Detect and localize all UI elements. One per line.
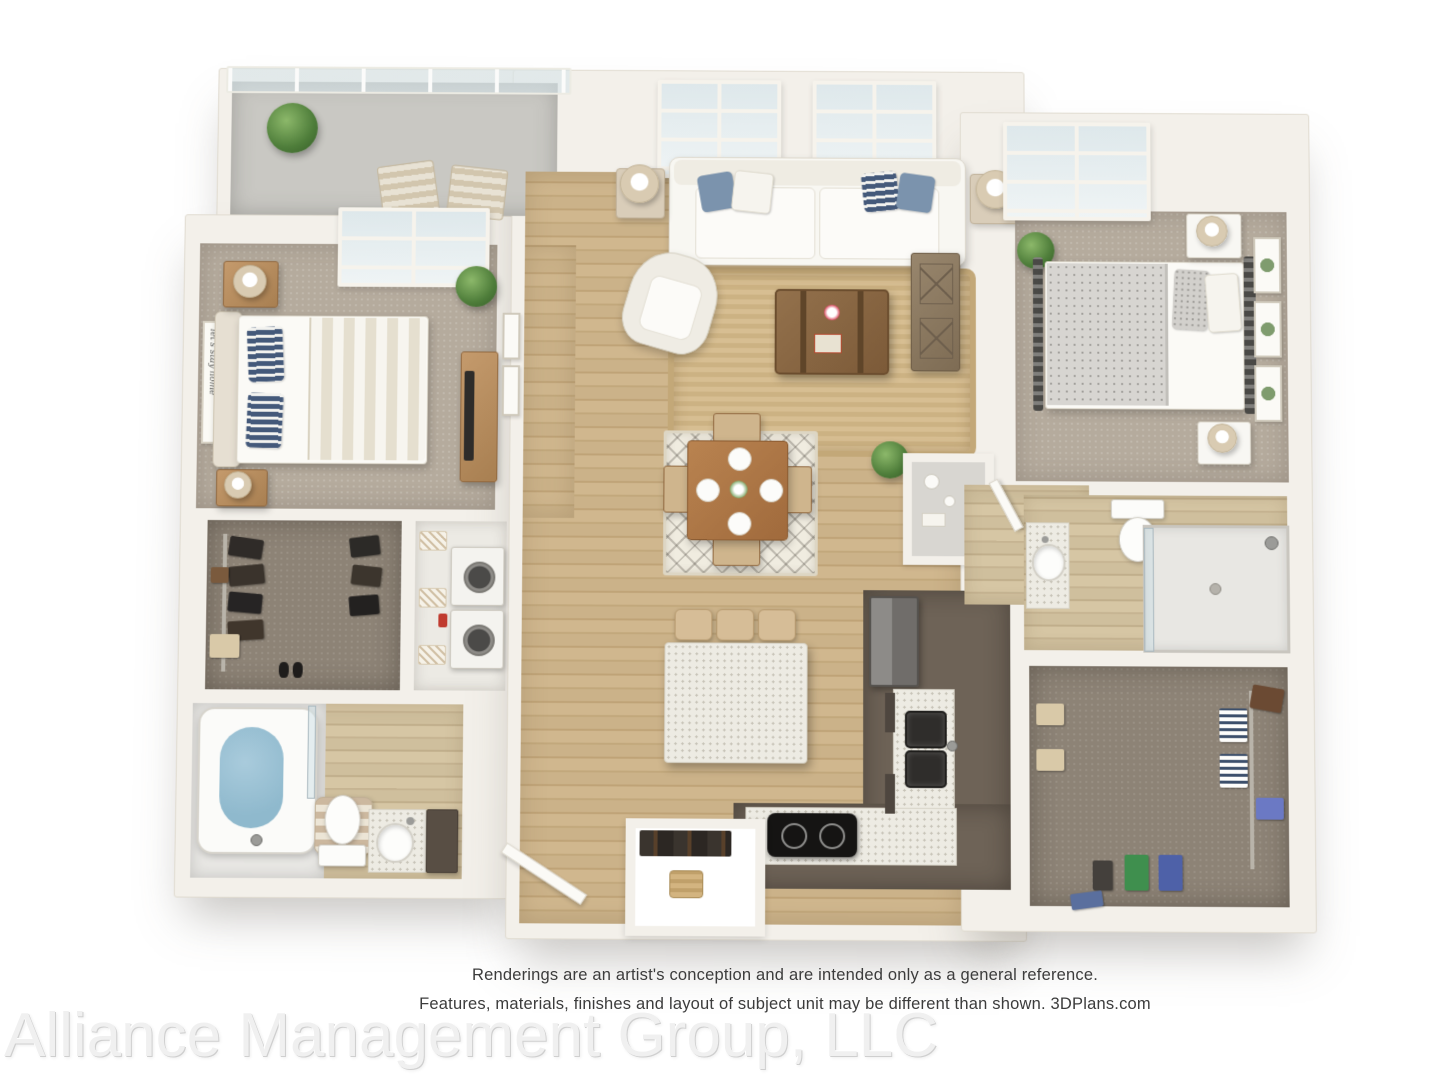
entry-closet-shelf bbox=[640, 830, 732, 856]
bathroom1-glass-screen bbox=[307, 706, 316, 799]
laundry-washer bbox=[450, 547, 504, 606]
armchair-cushion bbox=[637, 273, 704, 342]
coffee-table-flowers bbox=[824, 305, 840, 321]
laundry-towel-3 bbox=[418, 645, 446, 665]
bedroom1-plant bbox=[455, 266, 497, 307]
kitchen-sink-basin-bottom bbox=[905, 750, 947, 788]
kitchen-cooktop bbox=[767, 813, 857, 857]
bedroom1-bed bbox=[213, 315, 427, 462]
closet1-jacket-3 bbox=[227, 591, 263, 614]
bed1-pillow-bottom bbox=[245, 393, 283, 449]
kitchen-island bbox=[664, 642, 808, 763]
bedroom2-bed bbox=[1033, 255, 1257, 414]
floorplan-render-page: let's stay home bbox=[0, 0, 1440, 1080]
closet1-jacket-2 bbox=[228, 564, 265, 587]
kitchen-sink-basin-top bbox=[905, 711, 947, 749]
tub-water bbox=[219, 727, 284, 828]
bed2-pillow-white bbox=[1204, 273, 1242, 333]
shower-head bbox=[1265, 536, 1279, 550]
trunk-strap-right bbox=[858, 291, 864, 373]
bedroom2-lamp-bottom bbox=[1207, 423, 1237, 452]
hall-art-frame-2 bbox=[502, 365, 520, 416]
living-sofa bbox=[669, 157, 966, 267]
closet2-striped-shirt-2 bbox=[1220, 754, 1248, 788]
sofa-pillow-steel-right bbox=[896, 172, 936, 213]
laundry-dryer bbox=[450, 610, 504, 669]
bathroom1-toilet-tank bbox=[318, 844, 366, 866]
closet2-folded-blue-shirt bbox=[1256, 798, 1284, 820]
bedroom2-art-frame-2 bbox=[1254, 301, 1282, 358]
closet1-jacket-right-3 bbox=[349, 594, 380, 616]
balcony-glass-railing bbox=[226, 66, 571, 95]
nook-cup bbox=[944, 495, 956, 507]
island-stool-3 bbox=[758, 609, 796, 641]
hall-art-frame-1 bbox=[502, 313, 520, 360]
bathroom1-faucet bbox=[406, 817, 414, 825]
closet1-shoe-1 bbox=[279, 662, 289, 678]
shower-glass-door bbox=[1144, 528, 1155, 652]
dining-plate-top bbox=[728, 447, 752, 471]
cooktop-burner-left bbox=[781, 823, 807, 849]
bedroom2-window bbox=[1003, 122, 1151, 221]
closet2-shelf-box-2 bbox=[1036, 749, 1064, 771]
closet2-striped-shirt-1 bbox=[1219, 708, 1247, 742]
media-console-xdoor-bottom bbox=[920, 318, 954, 359]
closet1-storage-box bbox=[209, 634, 239, 658]
bedroom2-art-frame-1 bbox=[1253, 237, 1281, 293]
bed2-footboard-rail bbox=[1033, 257, 1043, 411]
shower-drain bbox=[1209, 583, 1221, 595]
entry-closet-basket bbox=[669, 870, 703, 898]
bedroom2-lamp-top bbox=[1196, 216, 1228, 247]
closet1-shoe-2 bbox=[293, 662, 303, 678]
dining-plate-bottom bbox=[728, 512, 752, 536]
bed1-pillow-top bbox=[247, 326, 285, 382]
bathroom2-faucet bbox=[1042, 536, 1049, 543]
island-stool-1 bbox=[675, 609, 713, 641]
sofa-pillow-navy bbox=[861, 171, 900, 213]
dryer-door bbox=[463, 624, 495, 656]
bathroom1-tub bbox=[196, 707, 318, 854]
bathroom2-shower bbox=[1143, 525, 1291, 654]
apartment-3d-floorplan: let's stay home bbox=[105, 62, 1225, 947]
dining-plate-right bbox=[759, 479, 783, 503]
disclaimer-line-2: Features, materials, finishes and layout… bbox=[0, 995, 1440, 1014]
closet2-hanging-dark bbox=[1093, 860, 1113, 890]
laundry-detergent bbox=[438, 614, 447, 628]
dining-centerpiece-flowers bbox=[730, 481, 748, 499]
kitchen-cabinet-front-2 bbox=[885, 774, 895, 814]
nook-towel bbox=[922, 513, 946, 527]
bedroom1-tv bbox=[464, 371, 475, 461]
bedroom1-hall-floor bbox=[523, 245, 577, 518]
living-media-console bbox=[911, 253, 960, 372]
coffee-table-books bbox=[814, 334, 842, 354]
kitchen-refrigerator bbox=[869, 596, 919, 687]
closet2-hanging-green bbox=[1125, 855, 1149, 891]
closet2-shelf-box-1 bbox=[1036, 703, 1064, 725]
kitchen-faucet bbox=[947, 741, 958, 752]
sofa-pillow-white bbox=[731, 170, 775, 215]
trunk-strap-left bbox=[800, 291, 806, 373]
dining-table bbox=[687, 440, 788, 540]
laundry-towel-1 bbox=[419, 531, 447, 551]
island-stool-2 bbox=[716, 609, 754, 641]
closet1-jacket-right-2 bbox=[351, 564, 383, 587]
cooktop-burner-right bbox=[819, 823, 845, 849]
dining-chair-bottom bbox=[713, 536, 761, 566]
tub-faucet bbox=[250, 834, 262, 846]
kitchen-cabinet-front-1 bbox=[885, 693, 895, 733]
closet1-bag bbox=[211, 567, 229, 583]
living-coffee-table bbox=[775, 289, 890, 375]
washer-door bbox=[463, 562, 495, 594]
botanical-print-2 bbox=[1260, 307, 1276, 352]
bathroom2-sink bbox=[1032, 544, 1066, 581]
dining-chair-top bbox=[713, 413, 761, 443]
bedroom2-art-frame-3 bbox=[1254, 365, 1282, 422]
botanical-print-1 bbox=[1259, 243, 1275, 288]
entry-closet bbox=[625, 818, 765, 936]
dining-plate-left bbox=[696, 478, 720, 502]
botanical-print-3 bbox=[1260, 371, 1276, 416]
disclaimer-line-1: Renderings are an artist's conception an… bbox=[0, 966, 1440, 985]
closet2-hanging-blue bbox=[1158, 855, 1182, 891]
bed2-gray-duvet bbox=[1047, 263, 1169, 406]
media-console-xdoor-top bbox=[920, 263, 954, 304]
bed1-striped-duvet bbox=[308, 318, 427, 461]
closet1-jacket-right-1 bbox=[349, 535, 381, 558]
nook-kettle bbox=[924, 474, 940, 490]
bathroom1-cabinet bbox=[426, 809, 459, 873]
dining-chair-right bbox=[784, 466, 812, 513]
living-lamp-left bbox=[620, 164, 660, 203]
laundry-towel-2 bbox=[419, 588, 447, 608]
